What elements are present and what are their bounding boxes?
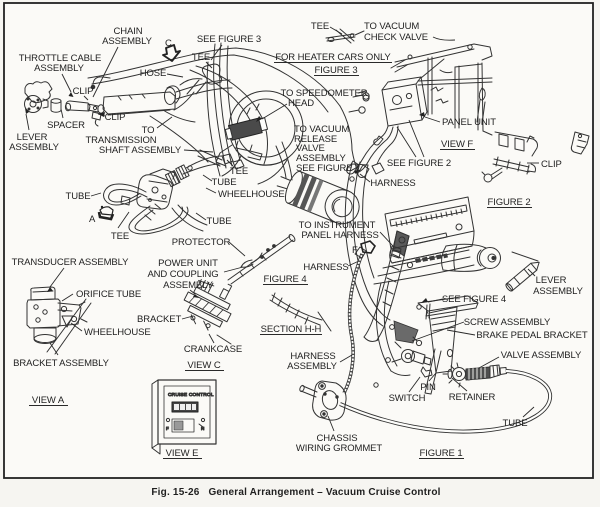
svg-text:VIEW A: VIEW A [32, 395, 65, 406]
svg-text:FIGURE 4: FIGURE 4 [263, 274, 306, 285]
svg-text:ASSEMBLY: ASSEMBLY [102, 36, 152, 47]
svg-text:ASSEMBLY: ASSEMBLY [533, 286, 583, 297]
svg-text:BRAKE PEDAL BRACKET: BRAKE PEDAL BRACKET [476, 330, 588, 341]
svg-text:SEE FIGURE 4: SEE FIGURE 4 [442, 294, 506, 305]
svg-text:BRACKET ASSEMBLY: BRACKET ASSEMBLY [13, 358, 109, 369]
svg-text:TEE: TEE [192, 52, 210, 63]
svg-text:SHAFT ASSEMBLY: SHAFT ASSEMBLY [99, 145, 182, 156]
svg-text:FIGURE 2: FIGURE 2 [487, 197, 530, 208]
svg-text:ASSEMBLY: ASSEMBLY [34, 63, 84, 74]
svg-text:VIEW E: VIEW E [166, 448, 199, 459]
svg-text:VIEW F: VIEW F [441, 139, 473, 150]
svg-text:HARNESS: HARNESS [370, 178, 415, 189]
svg-text:TUBE: TUBE [503, 418, 528, 429]
svg-text:TUBE: TUBE [66, 191, 91, 202]
svg-text:POWER UNIT: POWER UNIT [158, 258, 218, 269]
svg-text:ASSEMBLY: ASSEMBLY [9, 142, 59, 153]
svg-text:SCREW ASSEMBLY: SCREW ASSEMBLY [464, 317, 551, 328]
svg-text:TEE: TEE [111, 231, 129, 242]
svg-text:VIEW C: VIEW C [187, 360, 220, 371]
svg-text:SWITCH: SWITCH [389, 393, 426, 404]
svg-text:SPACER: SPACER [47, 120, 85, 131]
svg-text:CLIP: CLIP [73, 86, 94, 97]
svg-text:ASSEMBLY: ASSEMBLY [163, 280, 213, 291]
svg-text:PANEL UNIT: PANEL UNIT [442, 117, 496, 128]
svg-text:PANEL HARNESS: PANEL HARNESS [301, 230, 378, 241]
svg-text:A: A [89, 214, 96, 225]
svg-text:HARNESS: HARNESS [303, 262, 348, 273]
svg-text:HEAD: HEAD [288, 98, 314, 109]
svg-text:FIGURE 1: FIGURE 1 [419, 448, 462, 459]
svg-text:SEE FIGURE 3: SEE FIGURE 3 [197, 34, 261, 45]
svg-text:PIN: PIN [420, 382, 436, 393]
svg-text:TEE: TEE [230, 166, 248, 177]
svg-text:AND COUPLING: AND COUPLING [147, 269, 218, 280]
svg-text:PROTECTOR: PROTECTOR [172, 237, 231, 248]
svg-text:TEE: TEE [311, 21, 329, 32]
svg-text:TUBE: TUBE [207, 216, 232, 227]
svg-text:SEE FIGURE 1: SEE FIGURE 1 [296, 163, 360, 174]
svg-text:CRANKCASE: CRANKCASE [184, 344, 242, 355]
svg-text:ASSEMBLY: ASSEMBLY [287, 361, 337, 372]
svg-text:F: F [166, 426, 169, 431]
svg-text:HOSE: HOSE [140, 68, 167, 79]
svg-text:VALVE ASSEMBLY: VALVE ASSEMBLY [501, 350, 582, 361]
svg-text:FIGURE 3: FIGURE 3 [314, 65, 357, 76]
svg-text:WIRING GROMMET: WIRING GROMMET [296, 443, 382, 454]
svg-text:WHEELHOUSE: WHEELHOUSE [218, 189, 285, 200]
svg-text:TUBE: TUBE [212, 177, 237, 188]
svg-text:ORIFICE TUBE: ORIFICE TUBE [76, 289, 141, 300]
svg-text:CRUISE CONTROL: CRUISE CONTROL [168, 392, 214, 398]
svg-text:RETAINER: RETAINER [449, 392, 496, 403]
svg-text:CLIP: CLIP [105, 112, 126, 123]
svg-text:BRACKET: BRACKET [137, 314, 181, 325]
svg-text:Fig. 15-26 General Arrangeme: Fig. 15-26 General Arrangement – Vacuum … [151, 487, 440, 498]
svg-text:CHECK VALVE: CHECK VALVE [364, 32, 428, 43]
svg-text:LEVER: LEVER [536, 275, 567, 286]
svg-text:TRANSDUCER ASSEMBLY: TRANSDUCER ASSEMBLY [12, 257, 129, 268]
svg-text:WHEELHOUSE: WHEELHOUSE [84, 327, 151, 338]
svg-text:FOR HEATER CARS ONLY: FOR HEATER CARS ONLY [275, 52, 391, 63]
svg-text:SECTION H-H: SECTION H-H [261, 324, 322, 335]
svg-text:TO VACUUM: TO VACUUM [364, 21, 419, 32]
svg-text:SEE FIGURE 2: SEE FIGURE 2 [387, 158, 451, 169]
svg-text:F: F [352, 245, 358, 256]
svg-text:CLIP: CLIP [541, 159, 562, 170]
